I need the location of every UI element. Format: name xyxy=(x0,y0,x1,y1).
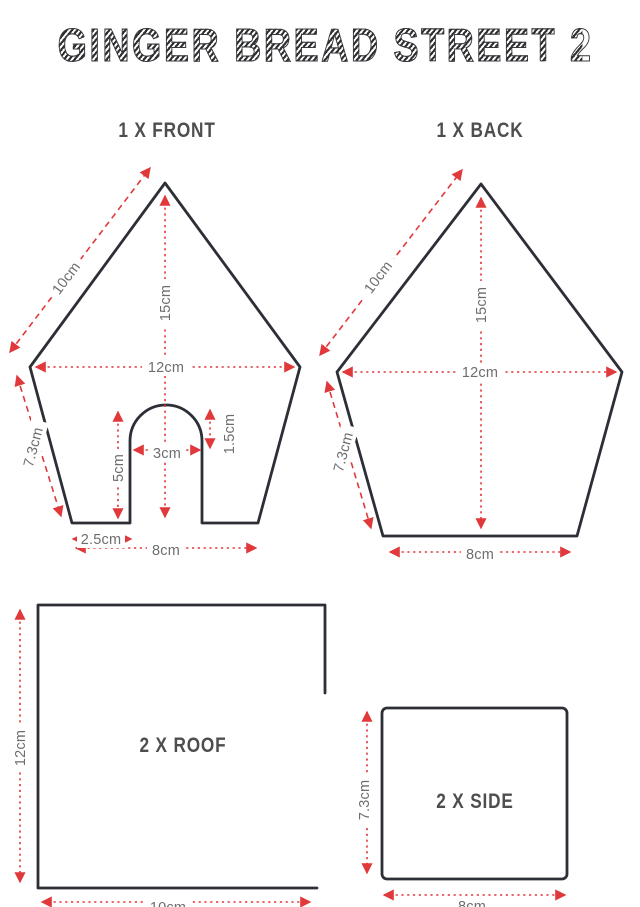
back-side-label: 7.3cm xyxy=(327,424,358,481)
svg-text:8cm: 8cm xyxy=(152,543,180,559)
side-height-label: 7.3cm xyxy=(355,773,373,827)
front-side-label: 7.3cm xyxy=(17,419,48,476)
roof-outline-shape xyxy=(38,605,325,888)
svg-text:8cm: 8cm xyxy=(458,899,486,907)
side-panel: 7.3cm 8cm xyxy=(355,708,567,907)
front-base-label: 8cm xyxy=(147,541,185,559)
svg-text:12cm: 12cm xyxy=(462,365,498,381)
pattern-sheet: GINGER BREAD STREET 2 1 X FRONT 1 X BACK… xyxy=(0,0,640,907)
front-door-arch-label: 1.5cm xyxy=(220,407,238,461)
roof-panel: 12cm 10cm xyxy=(11,605,325,907)
back-panel: 10cm 15cm 12cm 7.3cm 8cm xyxy=(320,170,622,563)
svg-text:5cm: 5cm xyxy=(111,454,127,482)
front-height-label: 15cm xyxy=(156,279,174,327)
back-outline-shape xyxy=(337,184,622,536)
svg-text:15cm: 15cm xyxy=(474,287,490,323)
side-width-label: 8cm xyxy=(453,897,491,907)
back-width-label: 12cm xyxy=(456,363,504,381)
front-door-width-label: 3cm xyxy=(148,444,186,462)
back-base-label: 8cm xyxy=(461,545,499,563)
back-slope-label: 10cm xyxy=(356,252,399,301)
roof-height-label: 12cm xyxy=(11,724,29,772)
front-door-height-label: 5cm xyxy=(109,449,127,487)
svg-text:10cm: 10cm xyxy=(150,900,186,907)
front-width-label: 12cm xyxy=(142,358,190,376)
svg-text:8cm: 8cm xyxy=(466,547,494,563)
svg-text:12cm: 12cm xyxy=(13,730,29,766)
svg-text:1.5cm: 1.5cm xyxy=(222,414,238,455)
front-door-offset-label: 2.5cm xyxy=(77,530,125,548)
front-panel: 10cm 15cm 12cm 7.3cm 5cm 3cm xyxy=(10,168,300,559)
svg-text:12cm: 12cm xyxy=(148,360,184,376)
svg-text:7.3cm: 7.3cm xyxy=(357,780,373,821)
svg-text:3cm: 3cm xyxy=(153,446,181,462)
pattern-canvas: 10cm 15cm 12cm 7.3cm 5cm 3cm xyxy=(0,0,640,907)
svg-text:7.3cm: 7.3cm xyxy=(21,426,47,469)
side-outline-shape xyxy=(382,708,567,879)
back-height-label: 15cm xyxy=(472,281,490,329)
svg-text:15cm: 15cm xyxy=(158,285,174,321)
roof-width-label: 10cm xyxy=(144,898,192,907)
svg-text:2.5cm: 2.5cm xyxy=(81,532,122,548)
